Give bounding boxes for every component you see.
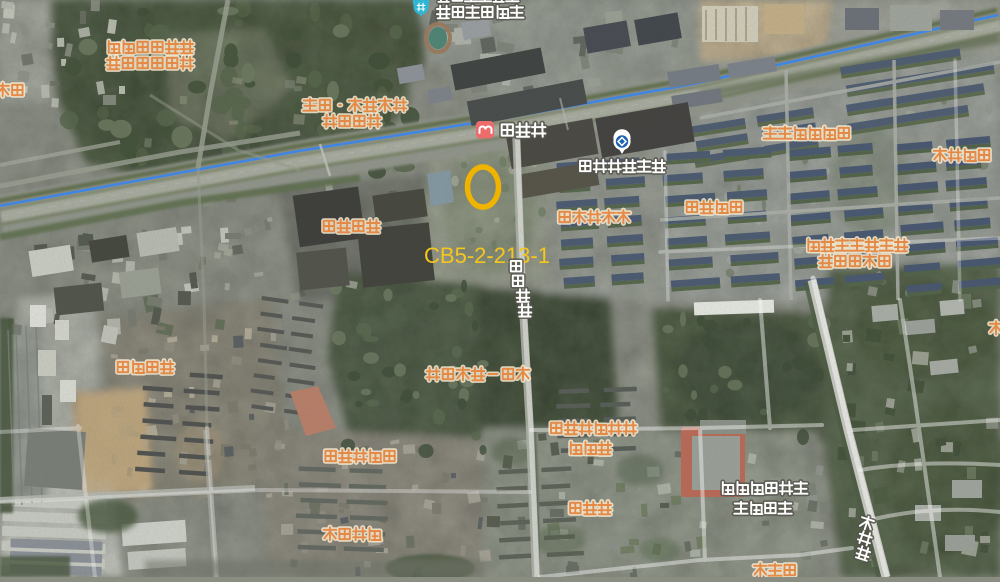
svg-text:CB5-2-213-1: CB5-2-213-1 <box>424 243 550 268</box>
